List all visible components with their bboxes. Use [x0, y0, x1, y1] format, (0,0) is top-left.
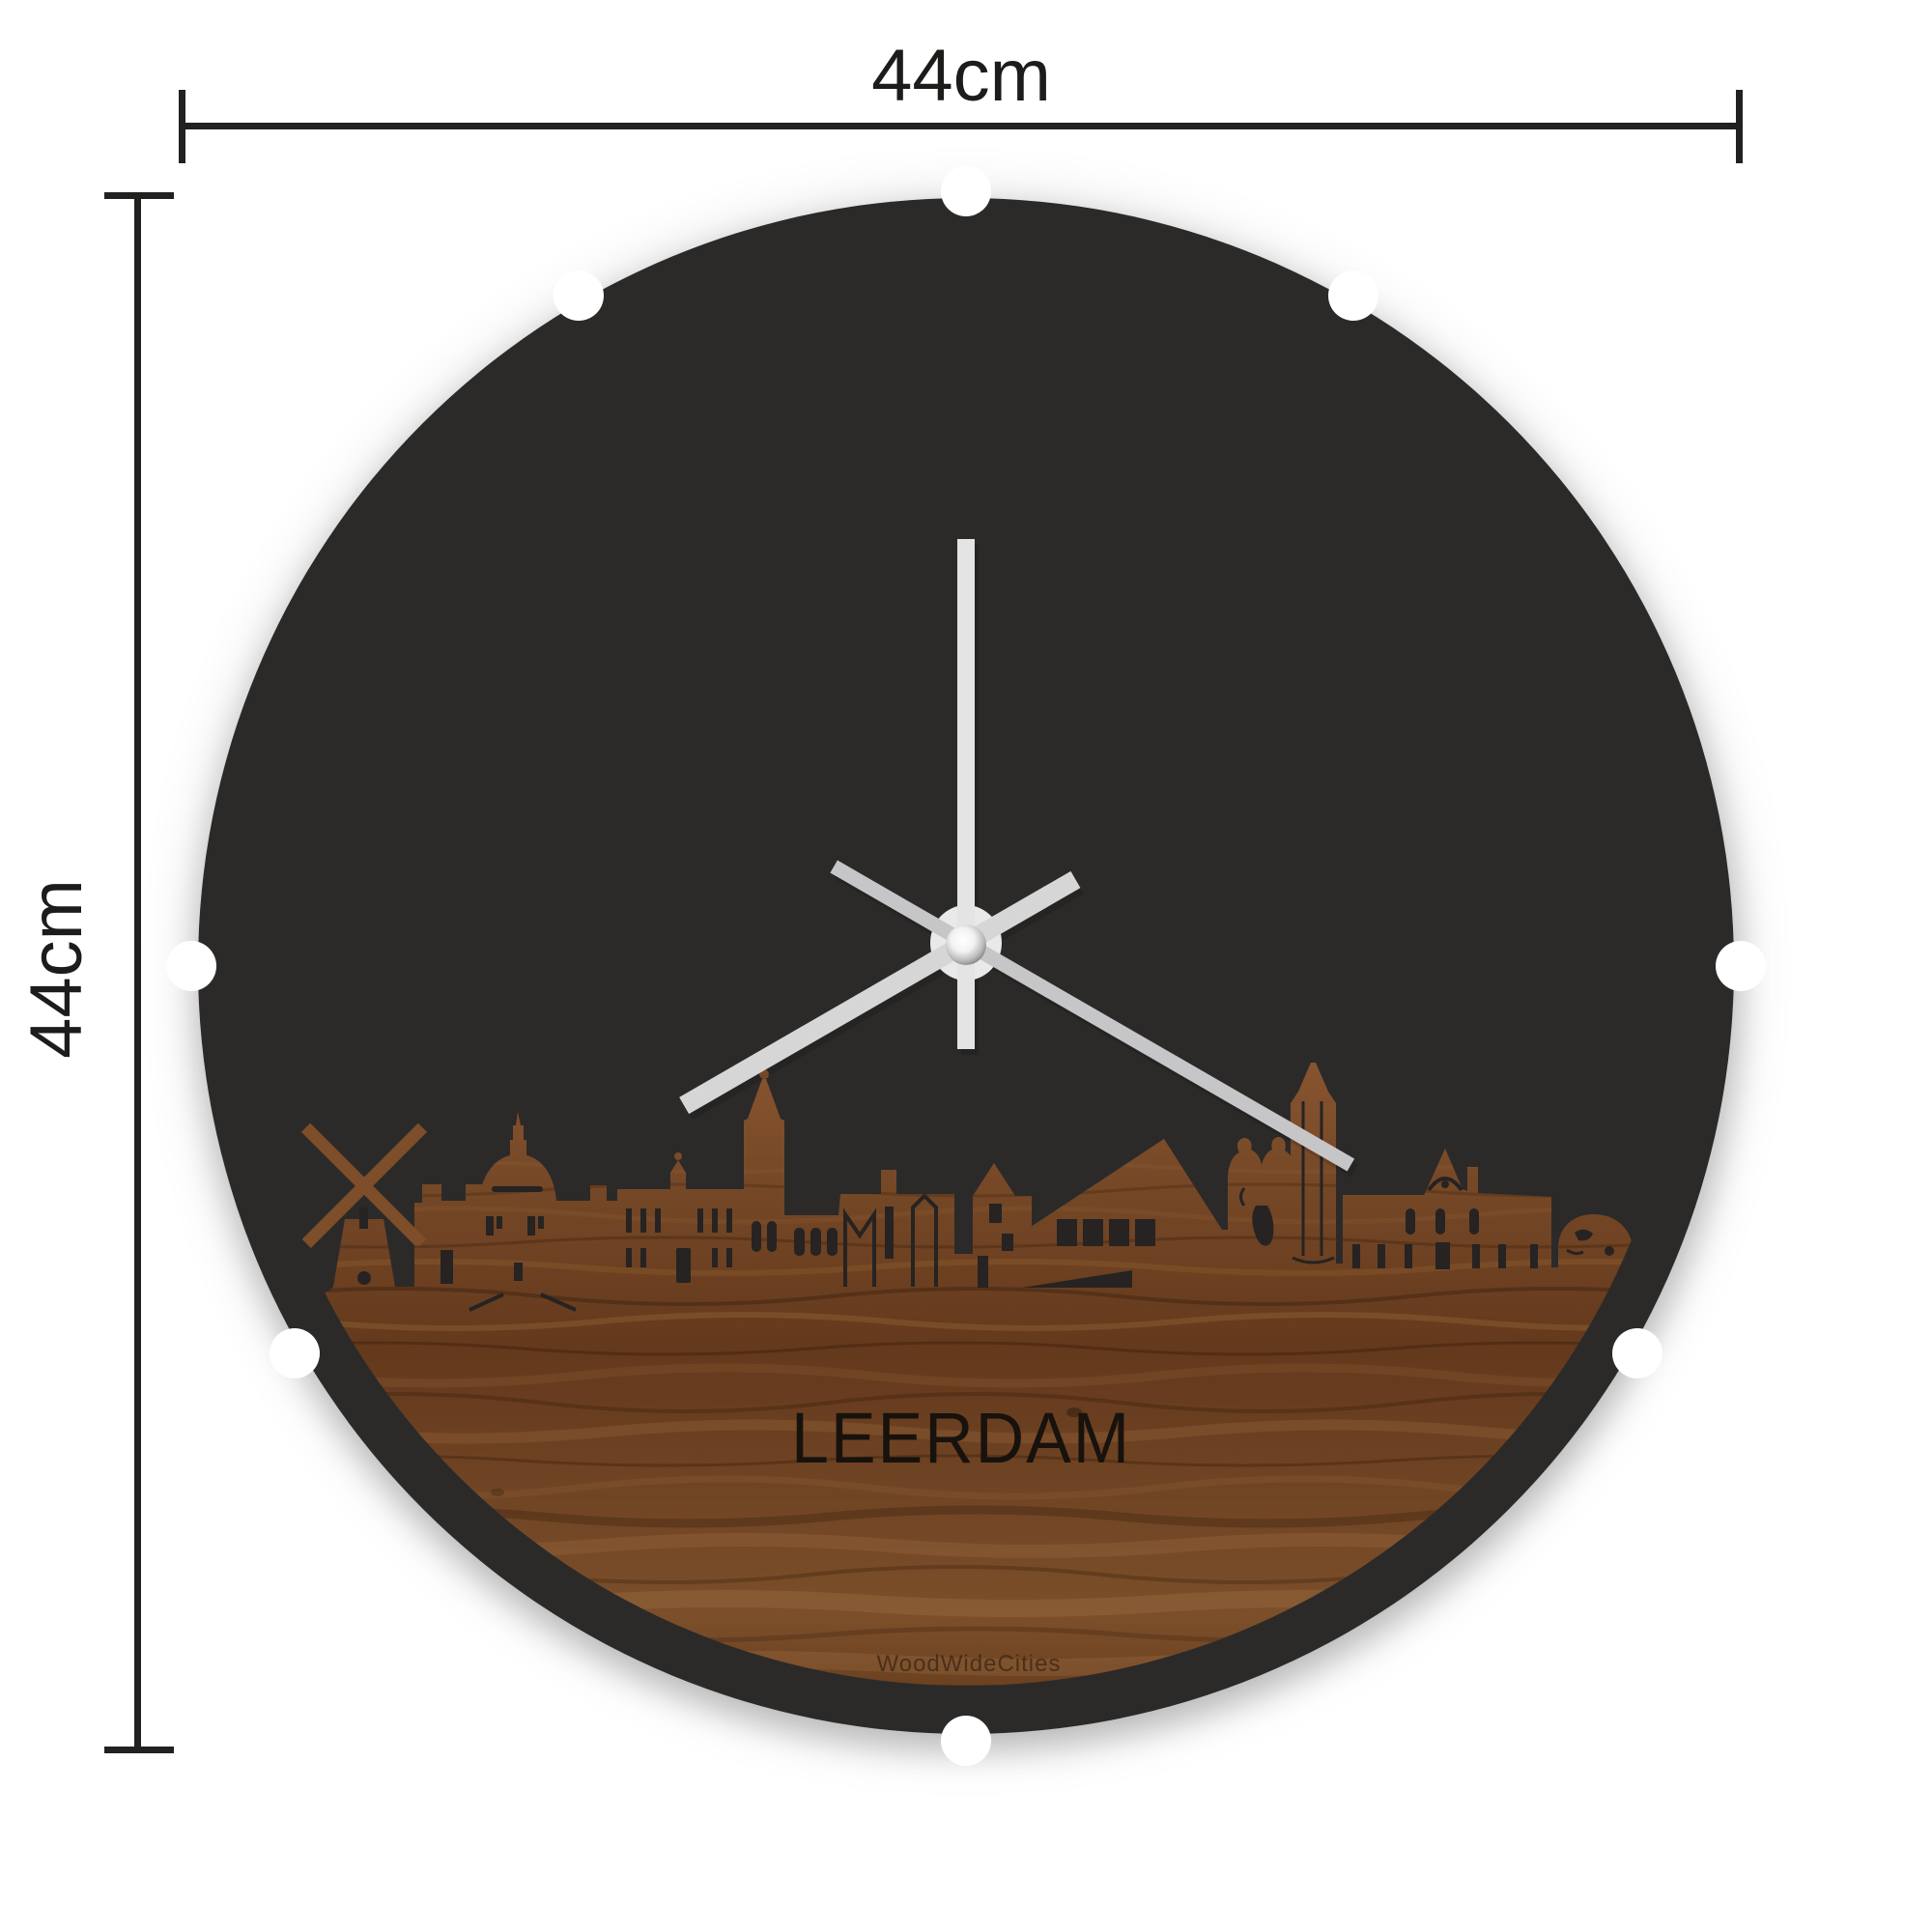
- window-cutout: [1109, 1219, 1129, 1246]
- window-cutout: [1352, 1244, 1360, 1268]
- manor-dot-cutout: [1441, 1180, 1449, 1188]
- door-cutout: [440, 1250, 453, 1284]
- height-dimension-tick-bottom: [104, 1747, 174, 1753]
- window-cutout: [626, 1208, 632, 1233]
- church-window-cutout: [767, 1221, 777, 1252]
- window-cutout: [697, 1208, 703, 1233]
- notch-12: [941, 166, 991, 216]
- window-cutout: [989, 1204, 1002, 1223]
- product-photo: 44cm 44cm: [0, 0, 1932, 1932]
- window-cutout: [712, 1208, 718, 1233]
- window-cutout: [514, 1263, 523, 1281]
- window-cutout: [1530, 1244, 1538, 1268]
- height-dimension-tick-top: [104, 192, 174, 199]
- window-cutout: [640, 1248, 646, 1267]
- window-cutout: [1469, 1208, 1479, 1235]
- window-cutout: [1057, 1219, 1077, 1246]
- width-dimension-tick-left: [179, 90, 185, 163]
- window-cutout: [538, 1216, 544, 1229]
- window-cutout: [1378, 1244, 1385, 1268]
- window-cutout: [527, 1216, 535, 1236]
- window-cutout: [1435, 1208, 1445, 1235]
- window-cutout: [1406, 1208, 1415, 1235]
- windmill-window-cutout: [359, 1207, 368, 1229]
- window-cutout: [726, 1208, 732, 1233]
- window-cutout: [626, 1248, 632, 1267]
- window-cutout: [1472, 1244, 1480, 1268]
- window-cutout: [1405, 1244, 1412, 1268]
- window-cutout: [655, 1208, 661, 1233]
- arch-window-cutout: [794, 1228, 805, 1256]
- bush-detail-cutout: [1605, 1246, 1614, 1256]
- arch-window-cutout: [810, 1228, 821, 1256]
- notch-1: [1328, 270, 1378, 321]
- width-dimension-label: 44cm: [871, 35, 1051, 117]
- window-cutout: [1083, 1219, 1103, 1246]
- notch-11: [554, 270, 604, 321]
- skyline-city-name: LEERDAM: [791, 1398, 1131, 1478]
- hub-cap-ball: [946, 924, 986, 965]
- width-dimension-tick-right: [1736, 90, 1743, 163]
- clock-product-image: 44cm 44cm: [0, 0, 1932, 1932]
- dome-slit-cutout: [492, 1186, 543, 1192]
- manor-door-cutout: [1435, 1242, 1450, 1269]
- window-cutout: [640, 1208, 646, 1233]
- window-cutout: [712, 1248, 718, 1267]
- windmill-door-cutout: [357, 1271, 371, 1285]
- height-dimension-label: 44cm: [15, 879, 98, 1059]
- window-cutout: [726, 1248, 732, 1267]
- church-window-cutout: [752, 1221, 761, 1252]
- notch-9: [166, 941, 216, 991]
- door-cutout: [978, 1256, 988, 1288]
- window-cutout: [1002, 1234, 1013, 1251]
- notch-3: [1716, 941, 1766, 991]
- brand-watermark: WoodWideCities: [877, 1651, 1062, 1677]
- height-dimension-line: [134, 195, 141, 1750]
- notch-6: [941, 1716, 991, 1766]
- notch-8: [270, 1328, 320, 1378]
- arch-window-cutout: [827, 1228, 838, 1256]
- window-cutout: [885, 1207, 894, 1259]
- window-cutout: [497, 1216, 502, 1229]
- notch-4: [1612, 1328, 1662, 1378]
- window-cutout: [486, 1216, 494, 1236]
- window-cutout: [1135, 1219, 1155, 1246]
- minute-hand: [957, 539, 975, 1049]
- window-cutout: [1498, 1244, 1506, 1268]
- door-cutout: [676, 1248, 691, 1283]
- width-dimension-line: [182, 123, 1740, 129]
- tower-knob: [674, 1152, 682, 1160]
